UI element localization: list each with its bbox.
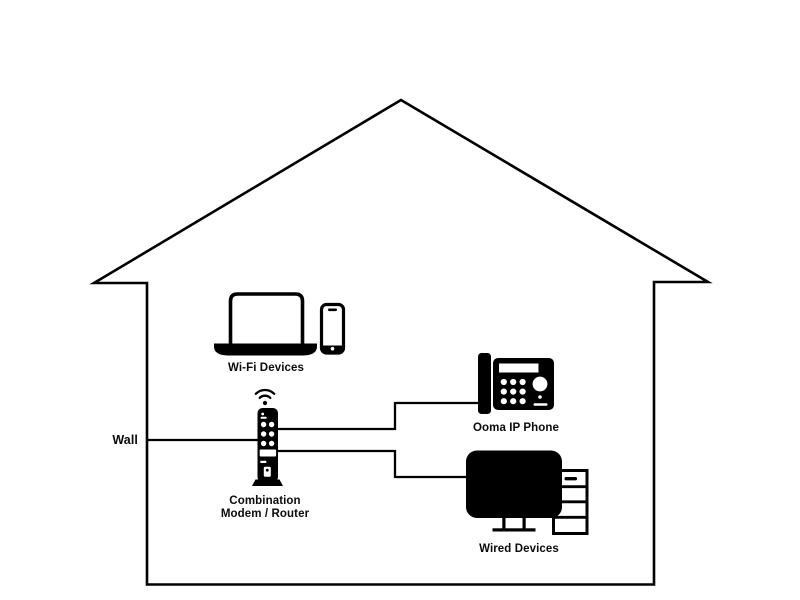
connection-lines xyxy=(148,403,479,477)
modem-to-wired-line xyxy=(277,451,467,477)
modem-router-icon xyxy=(252,408,283,486)
modem-to-phone-line xyxy=(277,403,479,429)
ip-phone-label: Ooma IP Phone xyxy=(473,422,559,435)
modem-router-label: Combination Modem / Router xyxy=(221,495,309,521)
modem-router-label-line2: Modem / Router xyxy=(221,508,309,521)
laptop-icon xyxy=(214,294,317,356)
ip-phone-icon xyxy=(478,353,554,414)
desktop-monitor-icon xyxy=(466,451,562,532)
wall-label: Wall xyxy=(98,434,138,447)
phone-handset xyxy=(478,353,491,414)
home-button-dot xyxy=(331,347,335,351)
phone-display xyxy=(499,364,539,373)
wired-devices-label: Wired Devices xyxy=(479,543,559,556)
house-outline xyxy=(94,100,708,585)
phone-keypad-dots xyxy=(501,379,526,404)
modem-router-label-line1: Combination xyxy=(221,495,309,508)
wifi-devices-label: Wi-Fi Devices xyxy=(228,362,304,375)
diagram-canvas: Wall Wi-Fi Devices Combination Modem / R… xyxy=(0,0,800,600)
wifi-signal-icon xyxy=(256,390,274,405)
phone-speaker-circle xyxy=(533,377,548,392)
smartphone-icon xyxy=(322,305,344,354)
network-diagram xyxy=(0,0,800,600)
